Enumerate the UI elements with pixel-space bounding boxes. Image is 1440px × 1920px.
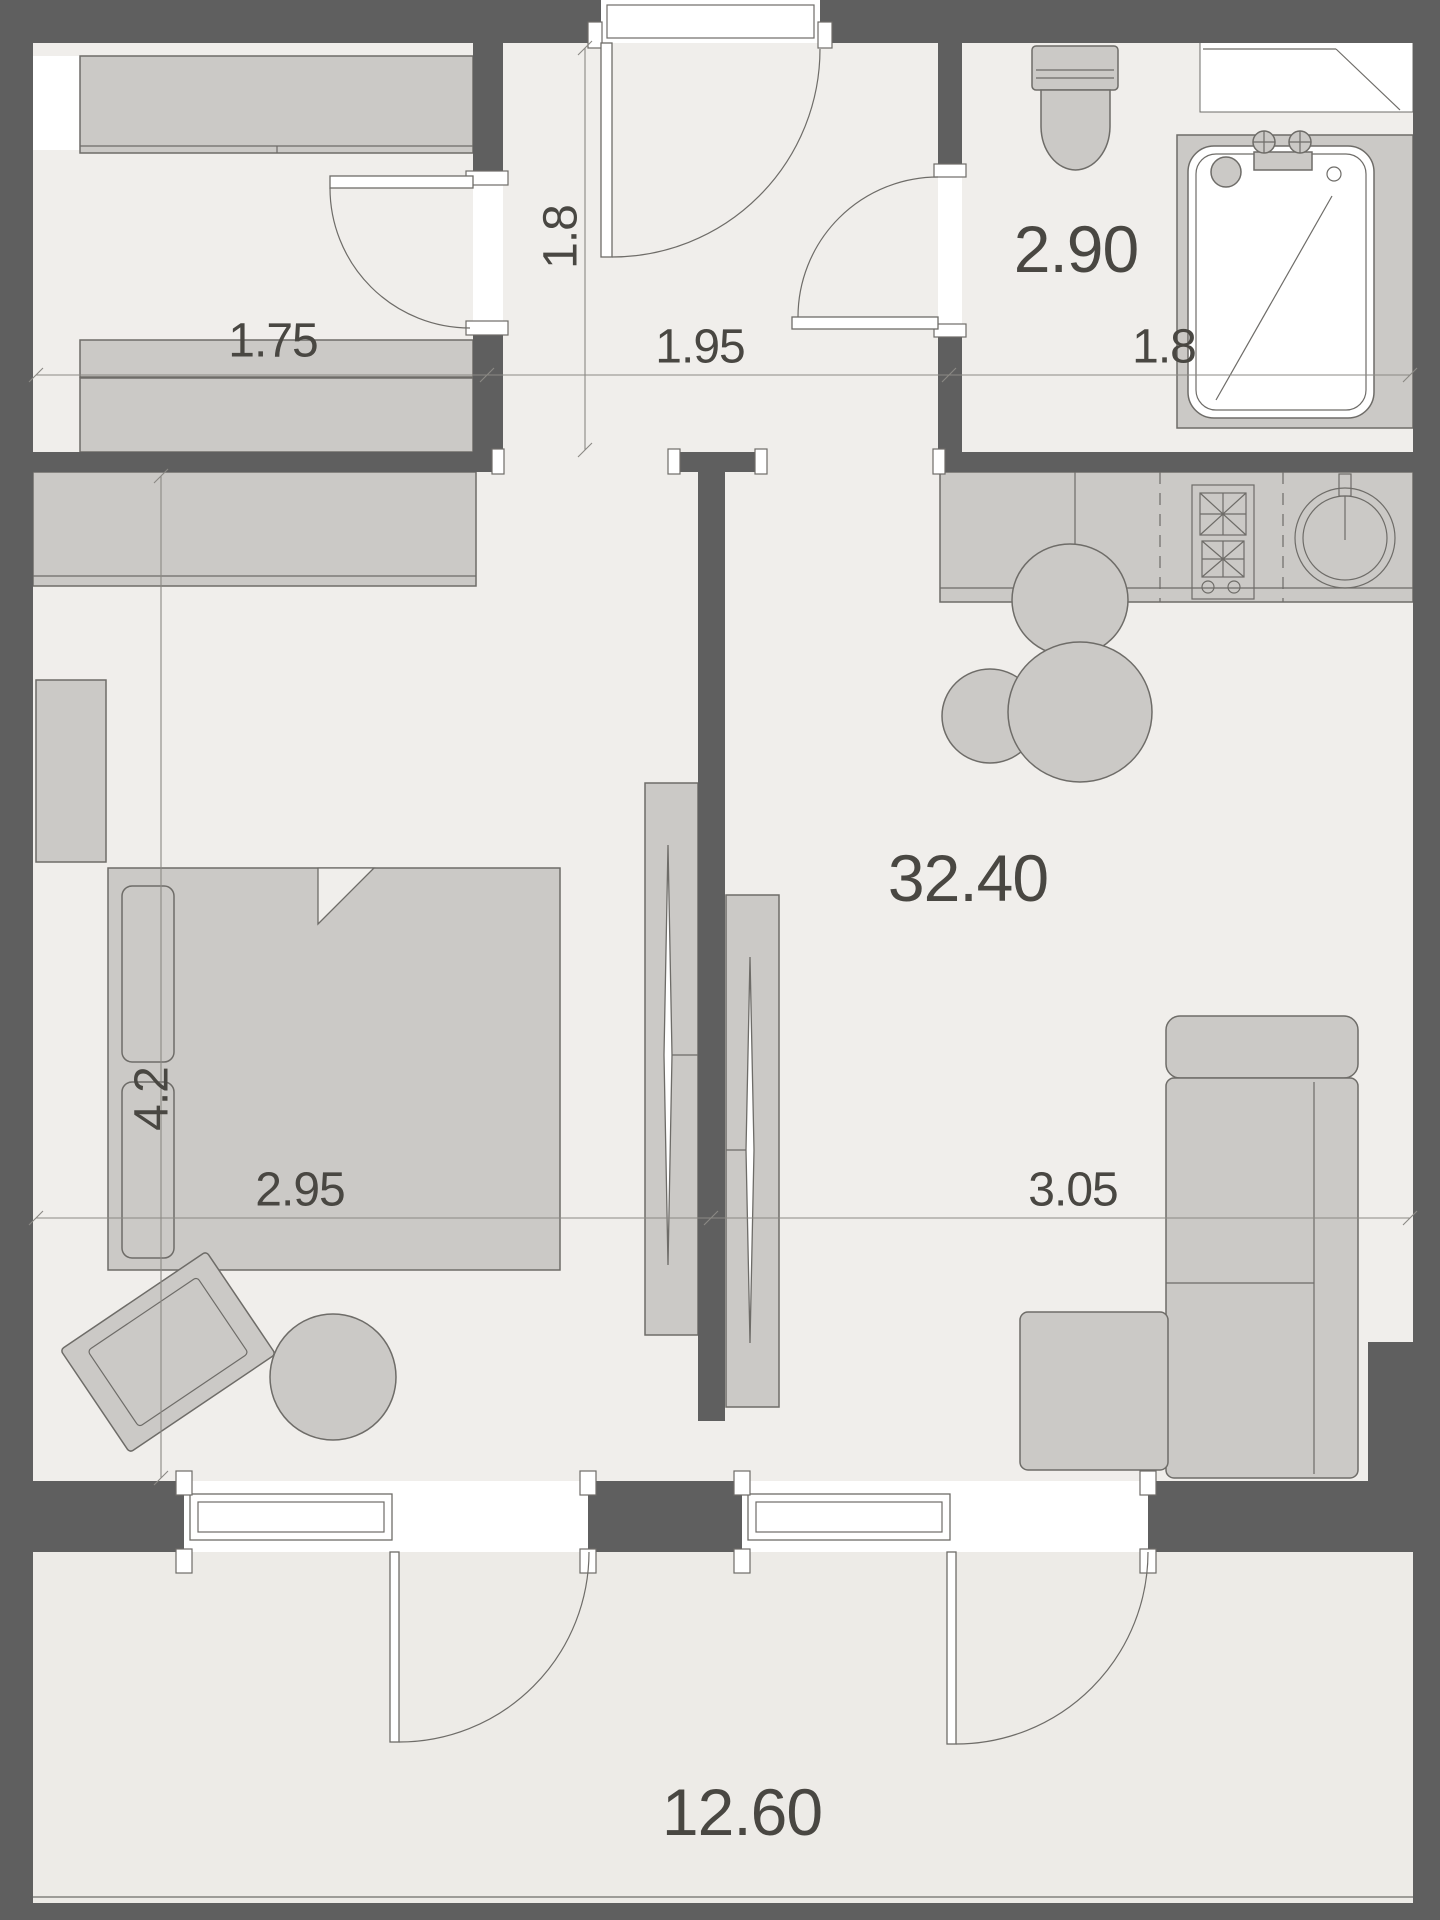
partition-wall-head — [680, 452, 757, 472]
hallway-width-label: 1.95 — [655, 321, 744, 374]
nightstand — [36, 680, 106, 862]
wall-niche — [26, 56, 80, 150]
window-jamb — [734, 1471, 750, 1495]
closet-width-label: 1.75 — [228, 315, 317, 368]
balcony-area-label: 12.60 — [662, 1775, 822, 1849]
dining-stool — [1012, 544, 1128, 656]
shaft-outline — [1200, 42, 1413, 112]
window-wall-segment — [33, 1481, 184, 1552]
opening-jamb — [668, 449, 680, 474]
sofa-ottoman — [1020, 1312, 1168, 1470]
hallway-depth-label: 1.8 — [535, 205, 588, 269]
closet-wardrobe — [80, 56, 473, 153]
burner-grate — [1200, 493, 1246, 535]
window-jamb — [1140, 1471, 1156, 1495]
opening-jamb — [933, 449, 945, 474]
living-window — [748, 1494, 950, 1540]
top-wall-right — [820, 0, 1440, 43]
living-area-label: 32.40 — [888, 841, 1048, 915]
closet-bottom-wall — [33, 452, 503, 472]
closet-door-leaf — [330, 176, 473, 188]
sofa-armrest — [1166, 1016, 1358, 1078]
bathtub-basin — [1188, 146, 1374, 418]
bottom-strip — [0, 1903, 1440, 1920]
window-jamb — [580, 1471, 596, 1495]
bedroom-balcony-door-leaf — [390, 1552, 399, 1742]
opening-jamb — [492, 449, 504, 474]
entrance-door-leaf — [601, 43, 612, 257]
top-wall-left — [0, 0, 601, 43]
partition-wall — [698, 472, 725, 1421]
bathroom-door-opening — [938, 177, 962, 325]
hall-bath-wall-upper — [938, 43, 962, 177]
bedroom-depth-label: 4.2 — [126, 1067, 179, 1131]
pillow — [122, 886, 174, 1062]
closet-hall-wall-lower — [473, 322, 503, 452]
door-jamb — [934, 164, 966, 177]
bathroom-door-leaf — [792, 317, 938, 329]
living-balcony-door-leaf — [947, 1552, 956, 1744]
kitchen-counter — [940, 472, 1413, 602]
corner-column — [1368, 1342, 1413, 1552]
floor-plan-canvas: 1.75 1.95 1.8 1.8 2.90 4.2 2.95 3.05 32.… — [0, 0, 1440, 1920]
toilet-tank — [1032, 46, 1118, 90]
living-width-label: 3.05 — [1028, 1164, 1117, 1217]
door-jamb — [818, 22, 832, 48]
window-jamb — [734, 1549, 750, 1573]
door-jamb — [466, 321, 508, 335]
bedroom-window — [190, 1494, 392, 1540]
closet-hall-wall-upper — [473, 43, 503, 185]
service-shaft — [1200, 42, 1413, 112]
closet-door-opening — [473, 185, 503, 322]
bathroom-area-label: 2.90 — [1014, 212, 1138, 286]
bedroom-wardrobe — [33, 472, 476, 586]
window-jamb — [176, 1549, 192, 1573]
hall-bath-wall-lower — [938, 325, 962, 452]
entrance-opening — [601, 0, 820, 43]
door-jamb — [588, 22, 602, 48]
toilet-bowl — [1041, 90, 1110, 170]
left-wall — [0, 0, 33, 1920]
bedroom-width-label: 2.95 — [255, 1164, 344, 1217]
right-wall — [1413, 0, 1440, 1920]
dining-table — [1008, 642, 1152, 782]
bathroom-bottom-wall — [938, 452, 1413, 472]
bathroom-width-label: 1.8 — [1132, 321, 1196, 374]
closet-shelf-lower — [80, 378, 473, 452]
door-jamb — [934, 324, 966, 337]
sofa-body — [1166, 1078, 1358, 1478]
burner-grate — [1202, 541, 1244, 577]
window-wall-segment — [588, 1481, 742, 1552]
bathtub-spout — [1211, 157, 1241, 187]
window-jamb — [176, 1471, 192, 1495]
opening-jamb — [755, 449, 767, 474]
balcony-floor — [33, 1552, 1413, 1903]
floor-plan: 1.75 1.95 1.8 1.8 2.90 4.2 2.95 3.05 32.… — [0, 0, 1440, 1920]
pouf — [270, 1314, 396, 1440]
bathtub — [1177, 131, 1413, 428]
bathtub-mixer — [1254, 152, 1312, 170]
